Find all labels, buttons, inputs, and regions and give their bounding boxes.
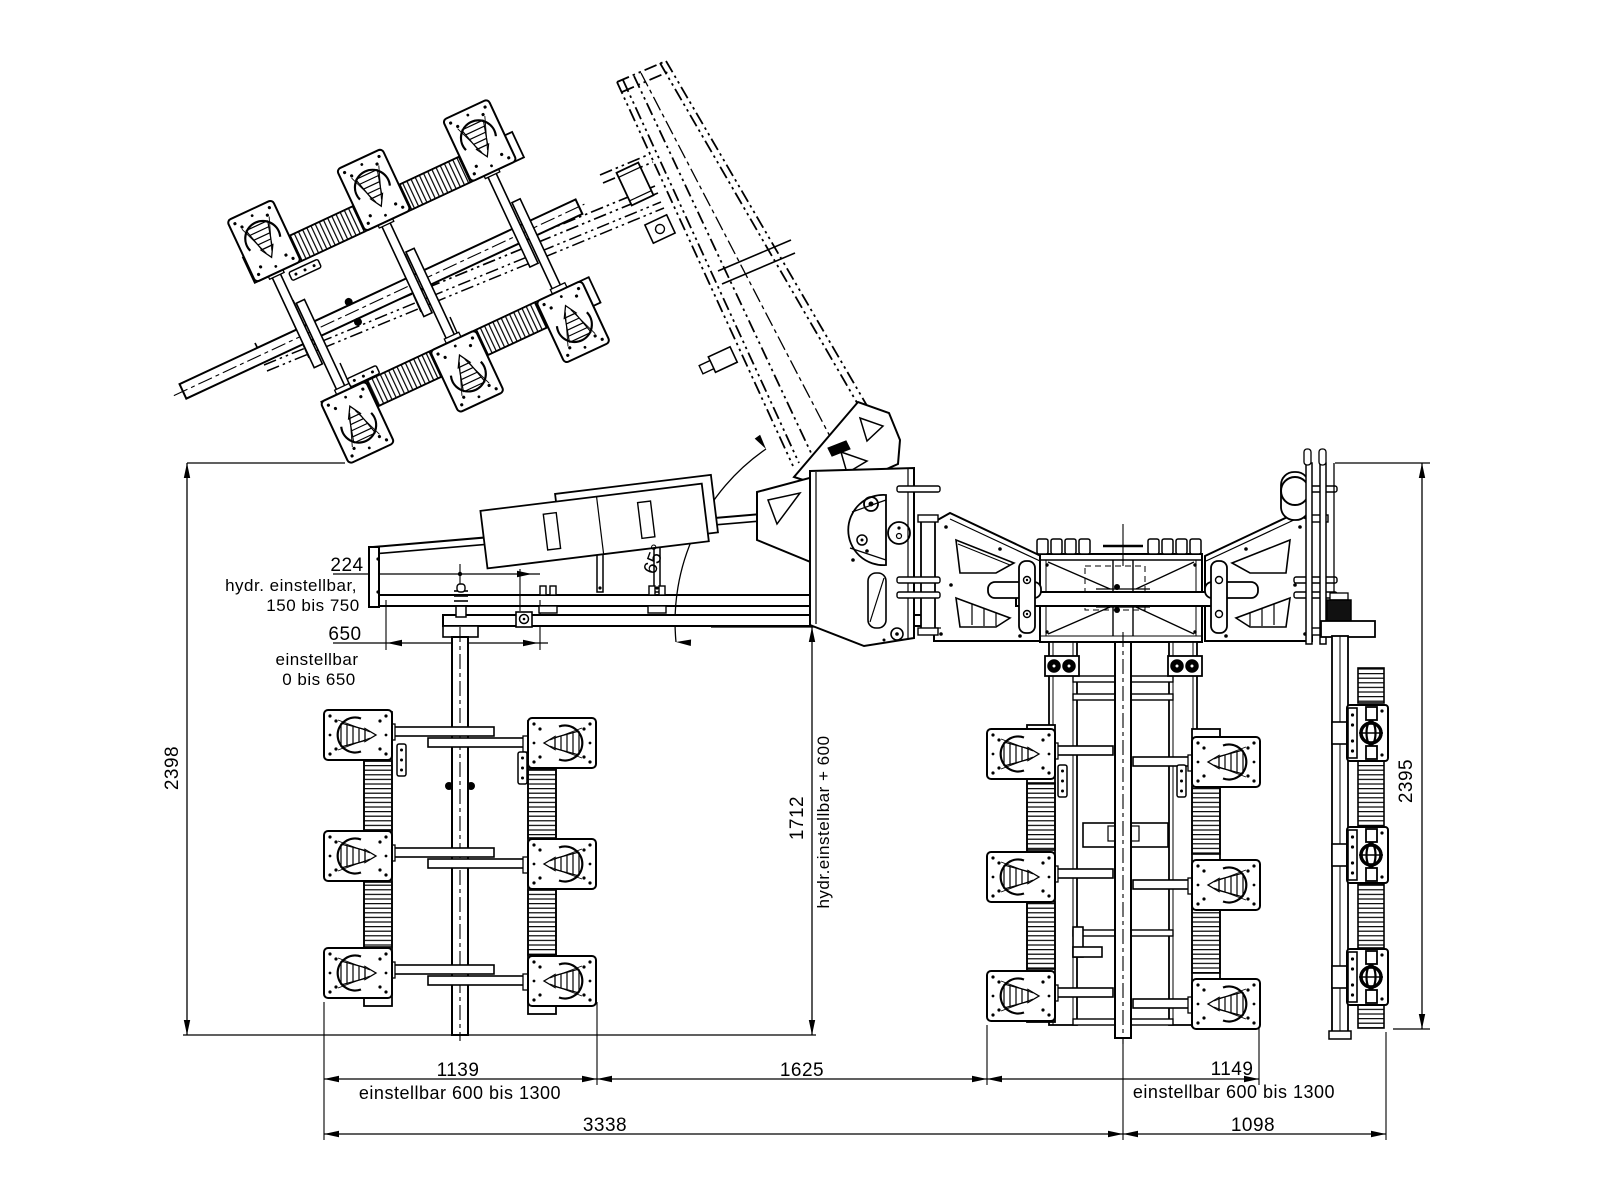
svg-text:0 bis 650: 0 bis 650: [282, 670, 356, 689]
svg-text:1712: 1712: [787, 796, 808, 840]
svg-text:einstellbar 600 bis 1300: einstellbar 600 bis 1300: [359, 1083, 561, 1103]
svg-text:2398: 2398: [162, 746, 183, 790]
svg-text:1149: 1149: [1211, 1059, 1254, 1080]
svg-text:1098: 1098: [1231, 1115, 1275, 1136]
svg-text:3338: 3338: [583, 1115, 627, 1136]
svg-text:einstellbar: einstellbar: [276, 650, 359, 669]
svg-text:2395: 2395: [1396, 759, 1417, 803]
svg-text:650: 650: [328, 624, 361, 645]
svg-text:hydr.einstellbar + 600: hydr.einstellbar + 600: [814, 735, 833, 908]
svg-text:224: 224: [330, 555, 363, 576]
svg-text:hydr. einstellbar,: hydr. einstellbar,: [225, 576, 357, 595]
svg-text:1625: 1625: [780, 1060, 824, 1081]
svg-text:150 bis 750: 150 bis 750: [266, 596, 359, 615]
svg-text:einstellbar 600 bis 1300: einstellbar 600 bis 1300: [1133, 1082, 1335, 1102]
svg-text:1139: 1139: [437, 1060, 480, 1081]
